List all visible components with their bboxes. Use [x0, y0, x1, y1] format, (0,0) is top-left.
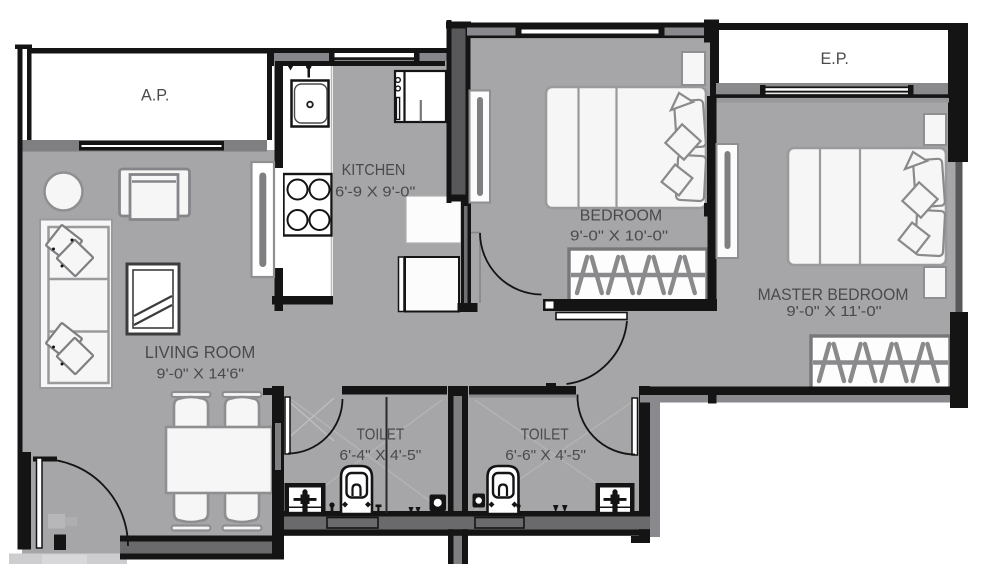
- svg-text:9'-0" X 14'6": 9'-0" X 14'6": [157, 365, 245, 382]
- svg-text:6'-9 X 9'-0": 6'-9 X 9'-0": [335, 184, 415, 201]
- svg-text:TOILET: TOILET: [357, 427, 405, 444]
- svg-text:KITCHEN: KITCHEN: [342, 162, 406, 179]
- svg-text:A.P.: A.P.: [141, 87, 170, 105]
- svg-text:9'-0" X 11'-0": 9'-0" X 11'-0": [786, 303, 881, 320]
- svg-text:6'-4" X 4'-5": 6'-4" X 4'-5": [339, 447, 421, 464]
- svg-text:9'-0" X 10'-0": 9'-0" X 10'-0": [570, 228, 668, 245]
- svg-text:E.P.: E.P.: [820, 50, 849, 68]
- svg-text:TOILET: TOILET: [521, 427, 570, 444]
- svg-text:MASTER BEDROOM: MASTER BEDROOM: [758, 285, 909, 304]
- svg-text:6'-6" X 4'-5": 6'-6" X 4'-5": [505, 447, 586, 464]
- svg-text:LIVING ROOM: LIVING ROOM: [145, 342, 256, 362]
- svg-text:BEDROOM: BEDROOM: [580, 208, 662, 225]
